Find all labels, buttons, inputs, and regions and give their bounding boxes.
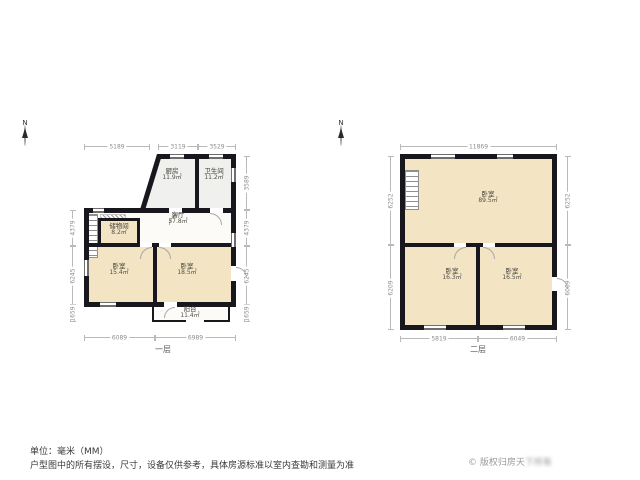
copyright-text: © 版权归房天下所有: [468, 455, 552, 468]
f2-wall-right: [552, 154, 557, 330]
f1-dim-top-3: 3529: [198, 146, 236, 147]
copyright-visible: 版权归房天: [477, 458, 525, 468]
disclaimer-text: 户型图中的所有摆设，尺寸，设备仅供参考，具体房源标准以室内查勘和测量为准: [30, 458, 354, 471]
f1-window-right-living: [231, 233, 236, 247]
unit-note: 单位：毫米（MM）: [30, 444, 109, 457]
room-area: 16.5㎡: [490, 275, 534, 282]
f1-window-left-bedroom: [84, 260, 89, 276]
room-area: 15.4㎡: [97, 270, 141, 277]
dim-value: 5189: [107, 144, 126, 151]
f2-window-bottom-2: [503, 325, 525, 330]
room-area: 89.5㎡: [466, 198, 510, 205]
room-label-kitchen: 厨房 11.9㎡: [150, 168, 194, 182]
north-arrow-floor2: N: [328, 120, 354, 145]
floorplan-page: N N 厨房 11.9㎡: [0, 0, 640, 480]
dim-value: 5819: [429, 336, 448, 343]
f1-dim-bottom-1: 6089: [84, 337, 155, 338]
room-area: 8.2㎡: [97, 230, 141, 237]
room-label-bedroom-left: 卧室 16.3㎡: [430, 268, 474, 282]
dim-value: 6049: [508, 336, 527, 343]
room-label-living: 客厅 57.8㎡: [156, 212, 200, 226]
dim-value: 3589: [244, 173, 251, 192]
f2-window-bottom-1: [424, 325, 446, 330]
f1-window-top-left: [93, 208, 104, 213]
f1-dim-top-2: 3119: [158, 146, 198, 147]
copyright-blurred: 下所有: [525, 458, 552, 468]
f1-window-balcony: [186, 320, 204, 322]
f1-dim-top-1: 5189: [84, 146, 150, 147]
f1-dim-right-4: 1659: [246, 305, 247, 322]
dim-value: 4379: [70, 218, 77, 237]
f2-wall-bedroom-divider: [476, 247, 480, 325]
dim-value: 6252: [388, 191, 395, 210]
f2-dim-bottom-1: 5819: [400, 338, 478, 339]
room-area: 18.5㎡: [165, 270, 209, 277]
f2-dim-left-2: 6209: [390, 245, 391, 330]
dim-value: 6245: [70, 266, 77, 285]
f2-wall-left: [400, 154, 405, 330]
f1-wall-bedroom-divider: [153, 243, 157, 307]
floor2-label: 二层: [455, 344, 501, 355]
room-label-bathroom: 卫生间 11.2㎡: [192, 168, 236, 182]
f2-dim-left-1: 6252: [390, 156, 391, 245]
copyright-icon: ©: [468, 458, 477, 468]
compass-needle-icon: [22, 128, 28, 138]
room-label-balcony: 阳台 11.4㎡: [168, 306, 212, 319]
dim-value: 1659: [244, 304, 251, 323]
room-label-bedroom-left: 卧室 15.4㎡: [97, 263, 141, 277]
dim-value: 3119: [168, 144, 187, 151]
f2-dim-right-1: 6252: [567, 156, 568, 245]
f1-dim-right-1: 3589: [246, 156, 247, 210]
room-label-storage: 储物间 8.2㎡: [97, 223, 141, 237]
compass-circle-icon: [340, 125, 342, 146]
floor1-label: 一层: [140, 344, 186, 355]
north-arrow-floor1: N: [12, 120, 38, 145]
f1-window-kitchen-top: [170, 154, 184, 159]
room-label-bedroom-big: 卧室 89.5㎡: [466, 191, 510, 205]
f2-dim-top-1: 11869: [400, 146, 557, 147]
f1-dim-right-2: 4379: [246, 210, 247, 246]
f2-window-top-1: [431, 154, 455, 159]
dim-value: 3529: [207, 144, 226, 151]
compass-needle-icon: [338, 128, 344, 138]
f1-dim-left-3: 1659: [72, 305, 73, 322]
room-area: 11.2㎡: [192, 175, 236, 182]
f1-wall-kitchen-bath-divider: [195, 154, 199, 213]
room-label-bedroom-right: 卧室 16.5㎡: [490, 268, 534, 282]
f1-window-bath-top: [209, 154, 223, 159]
dim-value: 6989: [186, 335, 205, 342]
room-area: 16.3㎡: [430, 275, 474, 282]
f1-dim-bottom-2: 6989: [155, 337, 236, 338]
dim-value: 6089: [110, 335, 129, 342]
dim-value: 6209: [388, 278, 395, 297]
f2-window-top-2: [497, 154, 513, 159]
f1-wall-left: [84, 208, 89, 307]
f2-wall-top: [400, 154, 557, 159]
f2-stairs: [405, 170, 419, 210]
dim-value: 11869: [467, 144, 490, 151]
dim-value: 1659: [70, 304, 77, 323]
f1-dim-left-1: 4379: [72, 210, 73, 246]
compass-circle-icon: [24, 125, 26, 146]
room-label-bedroom-right: 卧室 18.5㎡: [165, 263, 209, 277]
room-area: 57.8㎡: [156, 219, 200, 226]
f1-window-bottom-left: [100, 302, 116, 307]
room-area: 11.4㎡: [168, 313, 212, 319]
dim-value: 4379: [244, 218, 251, 237]
f1-dim-left-2: 6245: [72, 246, 73, 305]
f2-dim-bottom-2: 6049: [478, 338, 557, 339]
room-area: 11.9㎡: [150, 175, 194, 182]
dim-value: 6252: [565, 191, 572, 210]
